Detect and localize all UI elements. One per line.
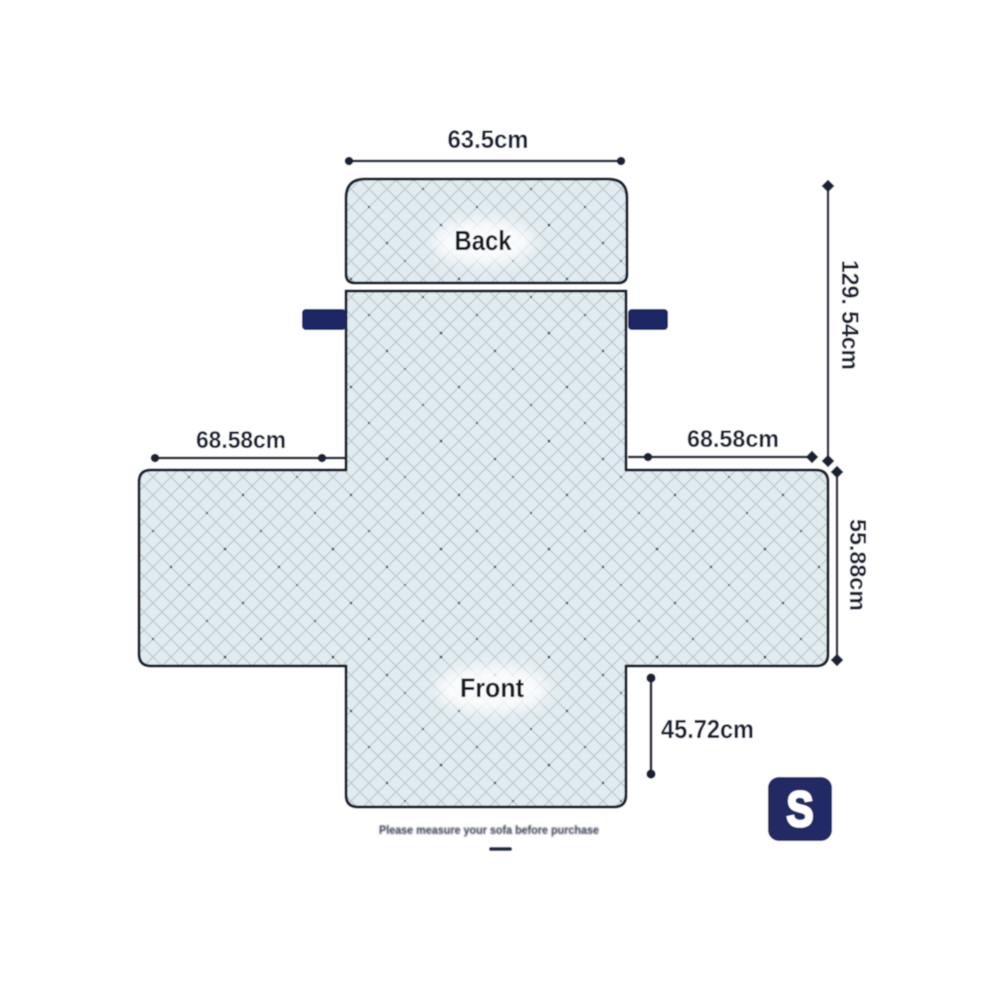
svg-text:Back: Back [455,225,512,256]
svg-text:Please measure your sofa befor: Please measure your sofa before purchase [379,823,599,837]
svg-text:45.72cm: 45.72cm [661,714,754,744]
svg-text:55.88cm: 55.88cm [845,519,871,611]
svg-text:68.58cm: 68.58cm [196,427,286,454]
svg-text:S: S [787,783,814,837]
svg-text:129. 54cm: 129. 54cm [836,260,863,370]
svg-text:Front: Front [460,673,524,703]
svg-text:68.58cm: 68.58cm [687,426,779,453]
svg-text:63.5cm: 63.5cm [448,126,529,154]
